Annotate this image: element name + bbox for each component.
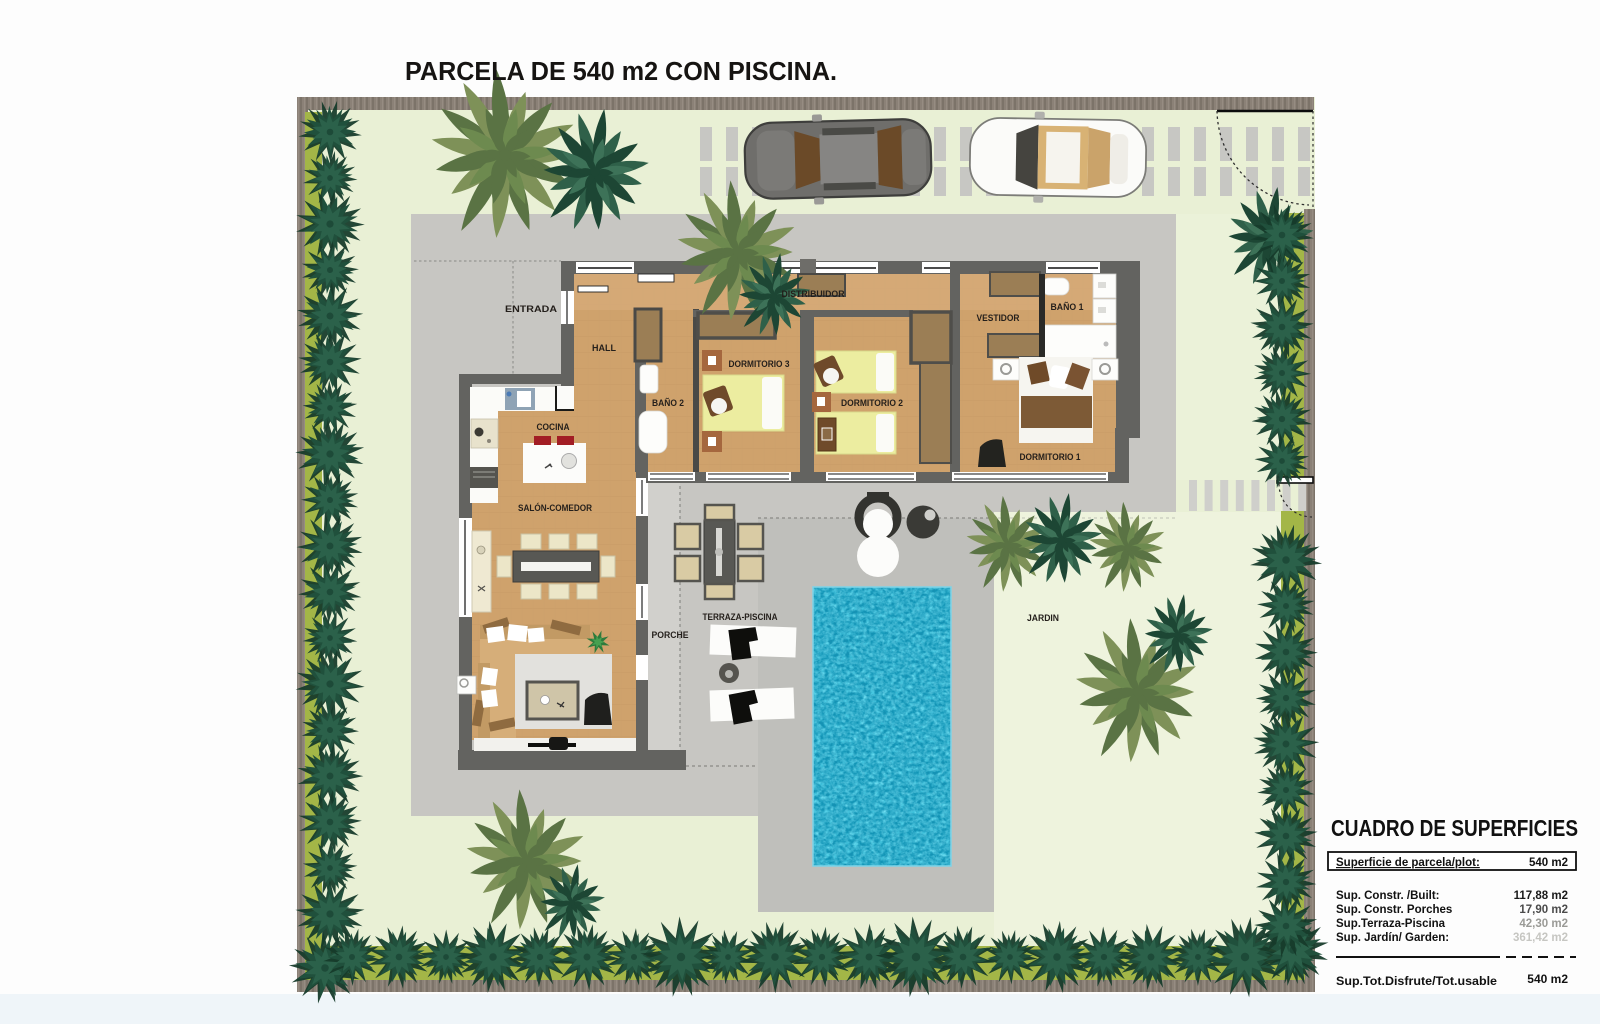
svg-text:BAÑO 2: BAÑO 2 bbox=[652, 398, 684, 409]
svg-text:DISTRIBUIDOR: DISTRIBUIDOR bbox=[782, 289, 845, 300]
svg-text:361,42 m2: 361,42 m2 bbox=[1513, 932, 1568, 944]
svg-text:DORMITORIO 1: DORMITORIO 1 bbox=[1020, 452, 1082, 463]
svg-text:DORMITORIO 3: DORMITORIO 3 bbox=[729, 359, 790, 370]
svg-text:CUADRO DE SUPERFICIES: CUADRO DE SUPERFICIES bbox=[1331, 815, 1578, 841]
svg-text:540 m2: 540 m2 bbox=[1529, 857, 1568, 869]
svg-text:TERRAZA-PISCINA: TERRAZA-PISCINA bbox=[703, 612, 778, 623]
svg-text:ENTRADA: ENTRADA bbox=[505, 304, 557, 315]
svg-text:Superficie de parcela/plot:: Superficie de parcela/plot: bbox=[1336, 857, 1480, 869]
svg-text:117,88 m2: 117,88 m2 bbox=[1514, 890, 1568, 902]
svg-text:Sup.Tot.Disfrute/Tot.usable: Sup.Tot.Disfrute/Tot.usable bbox=[1336, 974, 1497, 988]
svg-text:Sup. Constr. Porches: Sup. Constr. Porches bbox=[1336, 904, 1452, 916]
svg-text:PORCHE: PORCHE bbox=[652, 630, 690, 641]
svg-text:PARCELA DE 540 m2 CON PISCINA.: PARCELA DE 540 m2 CON PISCINA. bbox=[405, 58, 837, 86]
svg-text:42,30 m2: 42,30 m2 bbox=[1519, 918, 1568, 930]
svg-text:Sup.Terraza-Piscina: Sup.Terraza-Piscina bbox=[1336, 918, 1446, 930]
svg-text:540 m2: 540 m2 bbox=[1527, 972, 1568, 986]
svg-text:JARDIN: JARDIN bbox=[1027, 613, 1059, 623]
svg-text:BAÑO 1: BAÑO 1 bbox=[1051, 302, 1085, 313]
svg-text:COCINA: COCINA bbox=[537, 422, 570, 433]
svg-text:HALL: HALL bbox=[592, 343, 616, 354]
svg-text:Sup. Constr. /Built:: Sup. Constr. /Built: bbox=[1336, 890, 1440, 902]
svg-text:VESTIDOR: VESTIDOR bbox=[977, 313, 1020, 324]
svg-text:DORMITORIO 2: DORMITORIO 2 bbox=[841, 398, 903, 409]
svg-text:17,90 m2: 17,90 m2 bbox=[1519, 904, 1568, 916]
svg-text:Sup. Jardín/ Garden:: Sup. Jardín/ Garden: bbox=[1336, 932, 1449, 944]
svg-text:SALÓN-COMEDOR: SALÓN-COMEDOR bbox=[518, 502, 592, 514]
